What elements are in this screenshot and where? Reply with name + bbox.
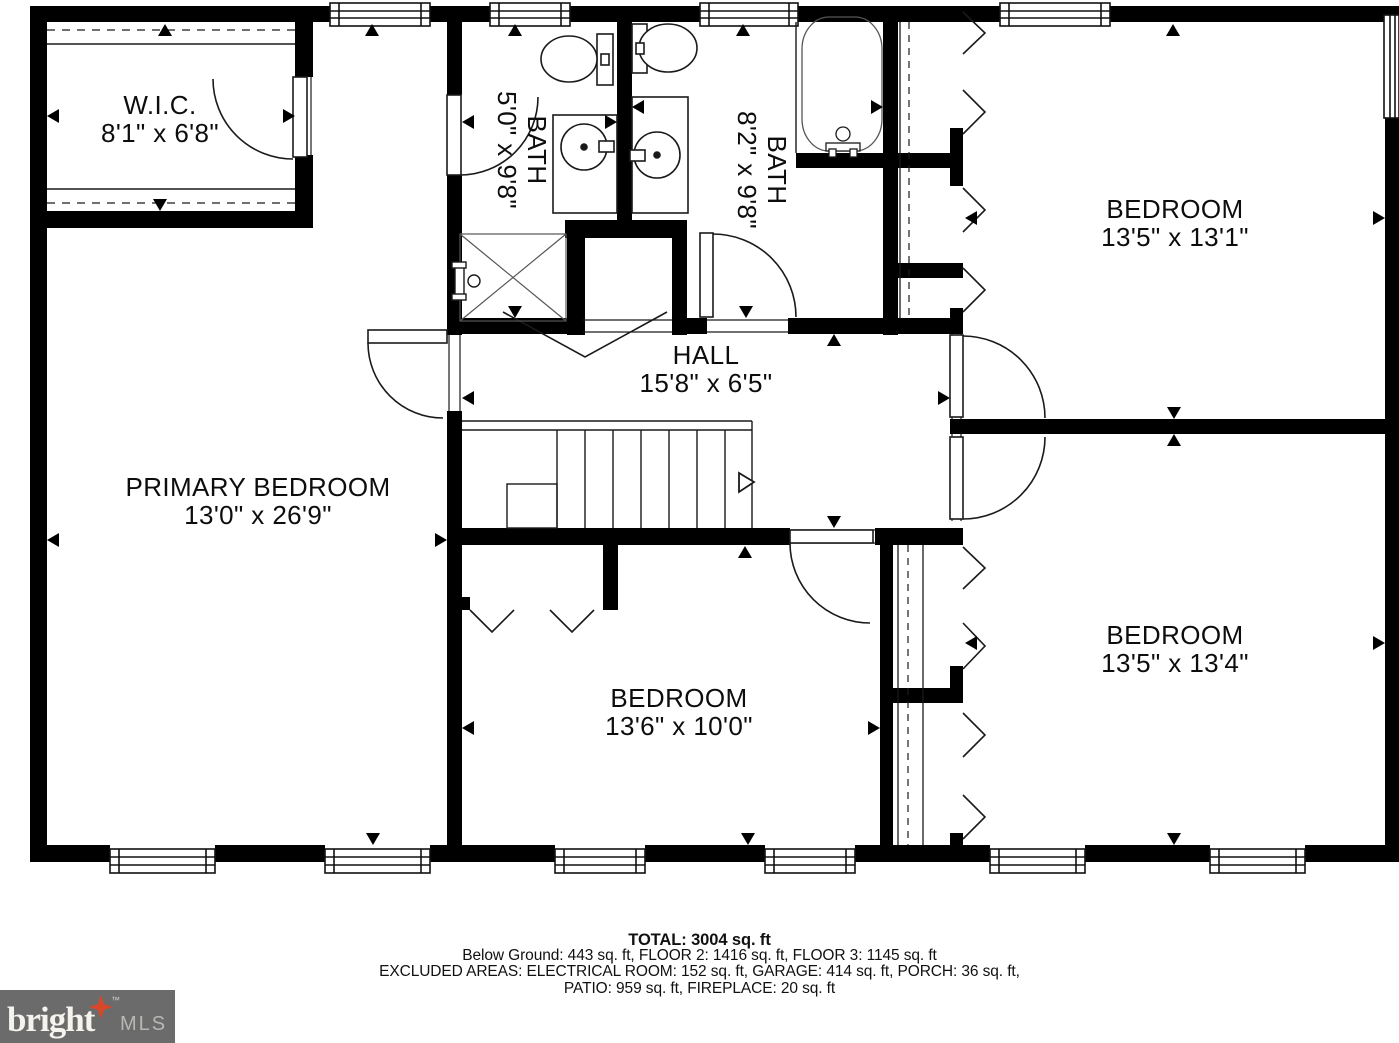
sink-vanity — [630, 97, 688, 213]
shower-valve — [452, 262, 480, 300]
excluded-areas-text-2: PATIO: 959 sq. ft, FIREPLACE: 20 sq. ft — [0, 981, 1399, 997]
room-label-bedroom-middle: BEDROOM — [610, 683, 747, 713]
room-dims-bath-2: 8'2" x 9'8" — [732, 111, 762, 229]
toilet — [632, 24, 697, 73]
bathtub — [802, 17, 882, 157]
floor-plan-page: W.I.C. 8'1" x 6'8" BATH 5'0" x 9'8" BATH… — [0, 0, 1399, 1043]
floor-plan: W.I.C. 8'1" x 6'8" BATH 5'0" x 9'8" BATH… — [0, 0, 1399, 1043]
room-label-hall: HALL — [673, 340, 740, 370]
room-dims-hall: 15'8" x 6'5" — [640, 368, 773, 398]
room-label-primary-bedroom: PRIMARY BEDROOM — [125, 472, 390, 502]
floor-areas-text: Below Ground: 443 sq. ft, FLOOR 2: 1416 … — [0, 948, 1399, 964]
room-dims-primary-bedroom: 13'0" x 26'9" — [184, 500, 332, 530]
room-label-bath-1: BATH — [522, 115, 552, 184]
logo-tm: ™ — [111, 995, 120, 1005]
room-label-wic: W.I.C. — [123, 90, 196, 120]
area-summary: TOTAL: 3004 sq. ft Below Ground: 443 sq.… — [0, 932, 1399, 997]
room-label-bath-2: BATH — [762, 135, 792, 204]
bright-mls-logo: bright ™ MLS — [0, 990, 175, 1043]
room-dims-bedroom-top-right: 13'5" x 13'1" — [1101, 222, 1249, 252]
room-label-bedroom-bottom-right: BEDROOM — [1106, 620, 1243, 650]
room-dims-bath-1: 5'0" x 9'8" — [492, 91, 522, 209]
total-area-text: TOTAL: 3004 sq. ft — [0, 932, 1399, 948]
room-dims-bedroom-bottom-right: 13'5" x 13'4" — [1101, 648, 1249, 678]
toilet — [541, 34, 613, 85]
room-label-bedroom-top-right: BEDROOM — [1106, 194, 1243, 224]
room-dims-wic: 8'1" x 6'8" — [101, 118, 219, 148]
logo-suffix-text: MLS — [120, 1013, 167, 1035]
room-dims-bedroom-middle: 13'6" x 10'0" — [605, 711, 753, 741]
logo-brand-text: bright — [7, 1000, 96, 1039]
sink-vanity — [553, 115, 617, 213]
excluded-areas-text: EXCLUDED AREAS: ELECTRICAL ROOM: 152 sq.… — [0, 964, 1399, 980]
